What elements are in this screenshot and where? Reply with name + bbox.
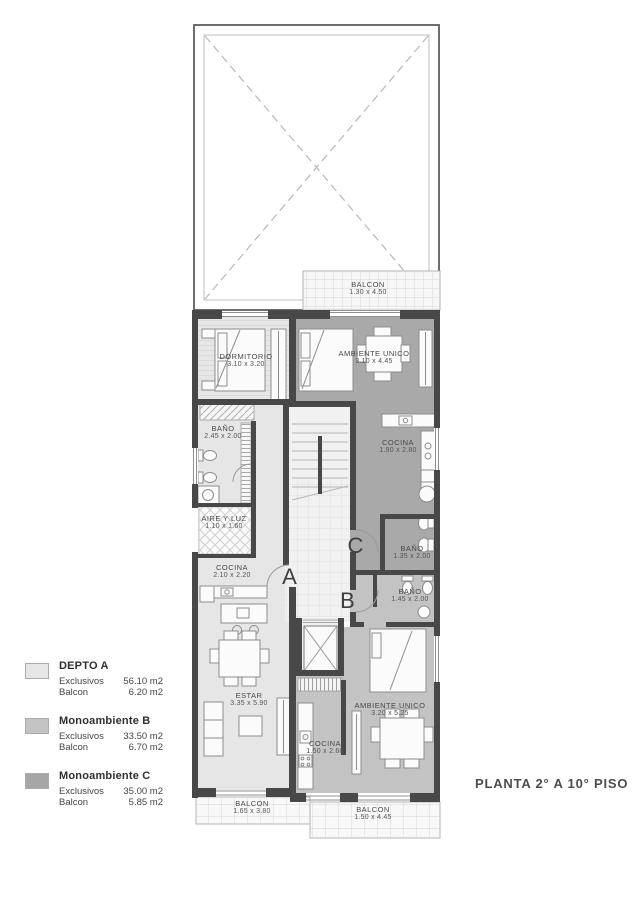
legend-swatch-c bbox=[25, 773, 49, 789]
unit-marker-a: A bbox=[282, 564, 298, 590]
room-label-ambiente-unico-c: AMBIENTE UNICO3.10 x 4.45 bbox=[339, 349, 410, 367]
sheet-title: PLANTA 2° A 10° PISO bbox=[475, 776, 628, 791]
room-label-bano-b: BAÑO1.45 x 2.00 bbox=[391, 587, 428, 605]
legend-swatch-a bbox=[25, 663, 49, 679]
room-label-ambiente-unico-b: AMBIENTE UNICO3.20 x 5.25 bbox=[355, 701, 426, 719]
legend-name-c: Monoambiente C bbox=[59, 770, 163, 782]
room-label-estar: ESTAR3.35 x 5.90 bbox=[230, 691, 267, 709]
room-label-bano-a: BAÑO2.45 x 2.00 bbox=[204, 424, 241, 442]
legend-item-monoambiente-c: Monoambiente C Exclusivos35.00 m2 Balcon… bbox=[25, 770, 163, 808]
unit-marker-c: C bbox=[348, 533, 365, 559]
room-label-cocina-a: COCINA2.10 x 2.20 bbox=[213, 563, 250, 581]
unit-marker-b: B bbox=[340, 588, 356, 614]
legend-swatch-b bbox=[25, 718, 49, 734]
room-label-cocina-c: COCINA1.90 x 2.80 bbox=[379, 438, 416, 456]
legend-name-b: Monoambiente B bbox=[59, 715, 163, 727]
room-label-dormitorio: DORMITORIO3.10 x 3.20 bbox=[219, 352, 272, 370]
elevator bbox=[296, 618, 344, 691]
legend-item-monoambiente-b: Monoambiente B Exclusivos33.50 m2 Balcon… bbox=[25, 715, 163, 753]
floorplan-linework bbox=[0, 0, 632, 900]
room-label-balcon-bottom-left: BALCON1.65 x 3.80 bbox=[233, 799, 270, 817]
room-label-aire-y-luz: AIRE Y LUZ1.10 x 1.60 bbox=[201, 514, 246, 532]
room-label-balcon-top: BALCON1.30 x 4.50 bbox=[349, 280, 386, 298]
room-label-balcon-bottom-right: BALCON1.50 x 4.45 bbox=[354, 805, 391, 823]
patio-void bbox=[194, 25, 439, 310]
legend-name-a: DEPTO A bbox=[59, 660, 163, 672]
legend-item-depto-a: DEPTO A Exclusivos56.10 m2 Balcon6.20 m2 bbox=[25, 660, 163, 698]
room-label-bano-c: BAÑO1.35 x 2.00 bbox=[393, 544, 430, 562]
room-label-cocina-b: COCINA1.50 x 2.60 bbox=[306, 739, 343, 757]
floor-plan-sheet: DORMITORIO3.10 x 3.20 AMBIENTE UNICO3.10… bbox=[0, 0, 632, 900]
